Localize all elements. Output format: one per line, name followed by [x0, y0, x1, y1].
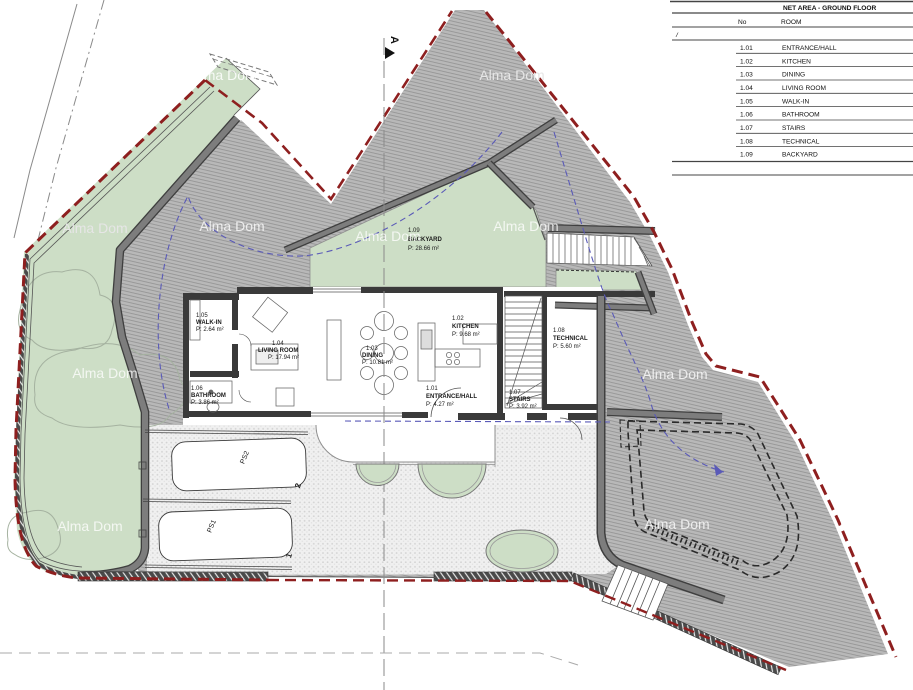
svg-text:1.06: 1.06	[740, 112, 753, 119]
svg-text:STAIRS: STAIRS	[782, 125, 806, 132]
svg-text:1.04: 1.04	[740, 85, 753, 92]
svg-text:P: 3.92 m²: P: 3.92 m²	[509, 404, 537, 410]
svg-text:LIVING ROOM: LIVING ROOM	[782, 85, 826, 92]
svg-text:1.05: 1.05	[196, 313, 208, 319]
svg-text:1.08: 1.08	[553, 328, 565, 334]
svg-text:1.06: 1.06	[191, 386, 203, 392]
svg-text:Alma D: Alma D	[839, 516, 885, 532]
svg-text:1.09: 1.09	[740, 152, 753, 159]
svg-text:1.01: 1.01	[740, 45, 753, 52]
svg-text:Alma Dom: Alma Dom	[199, 218, 264, 234]
svg-text:1.03: 1.03	[366, 346, 378, 352]
svg-text:WALK-IN: WALK-IN	[196, 320, 222, 326]
svg-text:BATHROOM: BATHROOM	[191, 393, 226, 399]
svg-text:TECHNICAL: TECHNICAL	[782, 138, 820, 145]
svg-text:KITCHEN: KITCHEN	[782, 58, 811, 65]
svg-text:1.08: 1.08	[740, 138, 753, 145]
svg-text:1.07: 1.07	[740, 125, 753, 132]
svg-text:WALK-IN: WALK-IN	[782, 98, 809, 105]
svg-text:P: 10.81 m²: P: 10.81 m²	[362, 360, 393, 366]
svg-text:P: 28.66 m²: P: 28.66 m²	[408, 246, 439, 252]
svg-text:A: A	[388, 36, 400, 44]
svg-text:No: No	[738, 19, 747, 26]
svg-text:Alma Dom: Alma Dom	[493, 218, 558, 234]
svg-text:1.02: 1.02	[740, 58, 753, 65]
svg-text:1.02: 1.02	[452, 316, 464, 322]
svg-text:P: 4.27 m²: P: 4.27 m²	[426, 402, 454, 408]
svg-text:Alma Dom: Alma Dom	[62, 220, 127, 236]
svg-text:ENTRANCE/HALL: ENTRANCE/HALL	[426, 394, 477, 400]
svg-text:P: 5.60 m²: P: 5.60 m²	[553, 344, 581, 350]
svg-text:BACKYARD: BACKYARD	[782, 152, 818, 159]
svg-text:NET AREA - GROUND FLOOR: NET AREA - GROUND FLOOR	[783, 5, 877, 12]
svg-text:ROOM: ROOM	[781, 19, 802, 26]
svg-text:1.04: 1.04	[272, 341, 284, 347]
svg-text:Alma Dom: Alma Dom	[57, 518, 122, 534]
svg-text:P: 9.68 m²: P: 9.68 m²	[452, 332, 480, 338]
svg-text:Alma Dom: Alma Dom	[191, 67, 256, 83]
svg-text:ENTRANCE/HALL: ENTRANCE/HALL	[782, 45, 837, 52]
svg-text:1.07: 1.07	[509, 390, 521, 396]
svg-text:P: 3.86 m²: P: 3.86 m²	[191, 400, 219, 406]
svg-text:Alma Dom: Alma Dom	[72, 365, 137, 381]
svg-text:1.01: 1.01	[426, 386, 438, 392]
svg-text:STAIRS: STAIRS	[509, 397, 531, 403]
svg-text:1.03: 1.03	[740, 72, 753, 79]
svg-text:P: 17.94 m²: P: 17.94 m²	[268, 355, 299, 361]
svg-text:Alma Dom: Alma Dom	[355, 228, 420, 244]
svg-text:Alma Dom: Alma Dom	[642, 366, 707, 382]
svg-text:TECHNICAL: TECHNICAL	[553, 336, 588, 342]
svg-text:BATHROOM: BATHROOM	[782, 112, 820, 119]
svg-text:KITCHEN: KITCHEN	[452, 324, 479, 330]
svg-text:DINING: DINING	[782, 72, 805, 79]
svg-text:1.05: 1.05	[740, 98, 753, 105]
svg-text:LIVING ROOM: LIVING ROOM	[258, 348, 298, 354]
svg-text:Alma Dom: Alma Dom	[644, 516, 709, 532]
svg-text:DINING: DINING	[362, 353, 383, 359]
svg-text:P: 2.64 m²: P: 2.64 m²	[196, 327, 224, 333]
svg-text:Alma Dom: Alma Dom	[479, 67, 544, 83]
